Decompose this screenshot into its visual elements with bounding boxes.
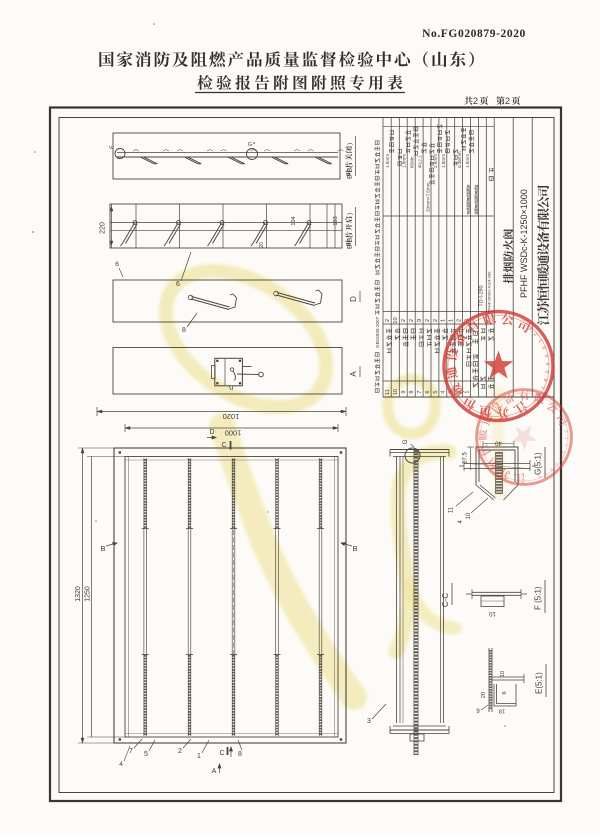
svg-text:2: 2 [385, 319, 391, 322]
svg-text:103: 103 [333, 216, 339, 225]
svg-text:9: 9 [401, 390, 407, 393]
svg-text:1.5mm: 1.5mm [385, 154, 390, 168]
svg-text:F (5:1): F (5:1) [534, 586, 543, 610]
svg-text:1000: 1000 [225, 429, 242, 438]
svg-text:10: 10 [393, 389, 399, 395]
svg-text:1.8mm: 1.8mm [441, 154, 446, 168]
svg-text:1020: 1020 [223, 412, 240, 421]
svg-text:JPFHF-WSDc-K/14-280: JPFHF-WSDc-K/14-280 [486, 271, 491, 314]
svg-text:D: D [349, 296, 358, 302]
svg-text:GB15930-2007: GB15930-2007 [375, 316, 380, 348]
svg-text:220: 220 [100, 222, 107, 234]
svg-text:A: A [212, 768, 217, 775]
svg-text:7: 7 [129, 748, 133, 755]
svg-text:10: 10 [500, 671, 506, 677]
svg-text:5: 5 [144, 751, 148, 758]
svg-text:4: 4 [119, 761, 123, 768]
svg-text:6: 6 [425, 390, 431, 393]
svg-text:3: 3 [367, 718, 371, 725]
svg-text:1.8mm: 1.8mm [402, 154, 407, 168]
svg-text:1: 1 [449, 319, 455, 322]
svg-text:6: 6 [176, 281, 180, 288]
svg-text:5: 5 [433, 390, 439, 393]
svg-text:8: 8 [182, 327, 186, 334]
svg-text:B: B [100, 544, 105, 553]
svg-text:2: 2 [505, 96, 510, 106]
svg-text:1250: 1250 [85, 586, 92, 602]
svg-text:2: 2 [409, 319, 415, 322]
svg-text:1320: 1320 [75, 586, 82, 602]
svg-text:4: 4 [544, 362, 550, 365]
svg-text:G(5:1): G(5:1) [534, 452, 543, 475]
svg-text:PFHF WSDc-K-1250×1000: PFHF WSDc-K-1250×1000 [519, 189, 529, 298]
svg-text:C-C: C-C [441, 593, 450, 607]
svg-text:C: C [219, 750, 224, 757]
svg-text:7: 7 [417, 390, 423, 393]
svg-text:104: 104 [291, 216, 297, 225]
svg-text:10: 10 [489, 610, 496, 616]
svg-text:Φ12.1: Φ12.1 [417, 155, 422, 168]
svg-text:No.FG020879-2020: No.FG020879-2020 [422, 28, 526, 40]
svg-text:10: 10 [466, 512, 472, 519]
svg-text:0.35mm: 0.35mm [457, 151, 462, 168]
svg-text:10: 10 [393, 317, 399, 323]
svg-text:1: 1 [464, 390, 470, 393]
svg-text:6: 6 [115, 261, 119, 268]
svg-text:17.5: 17.5 [463, 452, 469, 464]
svg-text:6: 6 [502, 691, 508, 694]
svg-text:65Mn: 65Mn [409, 156, 414, 168]
svg-text:18: 18 [499, 708, 505, 714]
svg-text:2: 2 [178, 748, 182, 755]
svg-text:2: 2 [433, 319, 439, 322]
svg-text:B: B [352, 544, 357, 553]
svg-text:11: 11 [385, 389, 391, 395]
svg-text:): ) [347, 143, 354, 145]
svg-text:9: 9 [417, 319, 423, 322]
svg-text:TD-I-280: TD-I-280 [479, 285, 485, 306]
svg-text:4: 4 [441, 390, 447, 393]
svg-text:40: 40 [495, 440, 502, 446]
svg-text:20: 20 [481, 692, 487, 698]
svg-text:E: E [110, 145, 116, 149]
svg-text:): ) [347, 213, 354, 215]
svg-text:2: 2 [457, 319, 463, 322]
svg-text:20mm×7.5mm: 20mm×7.5mm [425, 182, 430, 212]
svg-text:11: 11 [449, 506, 455, 513]
svg-text:B-B(: B-B( [347, 165, 354, 179]
svg-text:2: 2 [425, 319, 431, 322]
svg-text:1.5mm: 1.5mm [465, 154, 470, 168]
svg-text:8: 8 [409, 390, 415, 393]
svg-text:2: 2 [473, 96, 478, 106]
svg-text:D: D [209, 429, 214, 436]
svg-text:2: 2 [401, 319, 407, 322]
svg-text:1: 1 [197, 753, 201, 760]
svg-text:E(5:1): E(5:1) [535, 672, 544, 694]
svg-text:8: 8 [238, 751, 242, 758]
svg-text:G: G [248, 142, 252, 148]
svg-text:2.5mm: 2.5mm [433, 154, 438, 168]
svg-text:1: 1 [441, 319, 447, 322]
svg-text:G: G [402, 439, 409, 444]
svg-text:B-B(: B-B( [347, 235, 354, 249]
svg-text:20: 20 [259, 242, 265, 248]
svg-text:A: A [349, 371, 358, 377]
